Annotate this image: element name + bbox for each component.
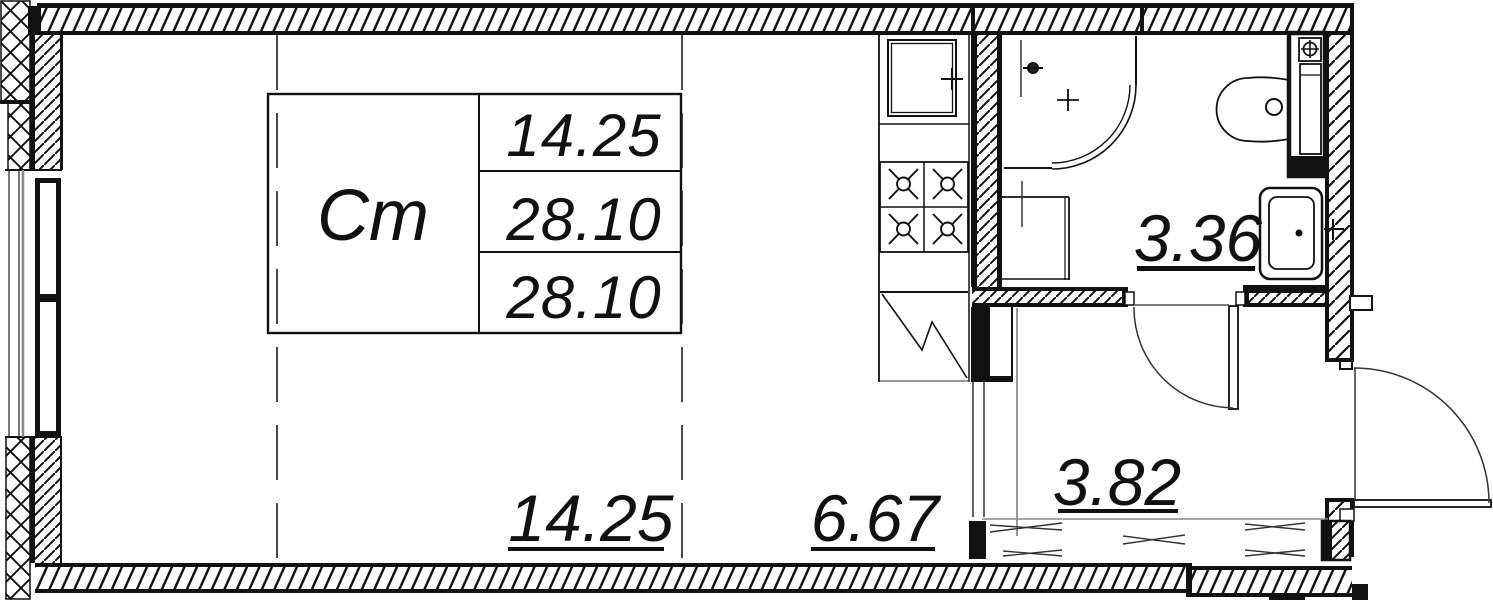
svg-text:14.25: 14.25	[506, 102, 661, 169]
svg-text:3.36: 3.36	[1134, 201, 1263, 275]
svg-text:3.82: 3.82	[1053, 445, 1181, 519]
svg-text:28.10: 28.10	[505, 264, 661, 331]
svg-text:6.67: 6.67	[811, 481, 942, 555]
svg-text:28.10: 28.10	[505, 186, 661, 253]
svg-text:Ст: Ст	[317, 176, 429, 256]
svg-text:14.25: 14.25	[508, 481, 673, 555]
